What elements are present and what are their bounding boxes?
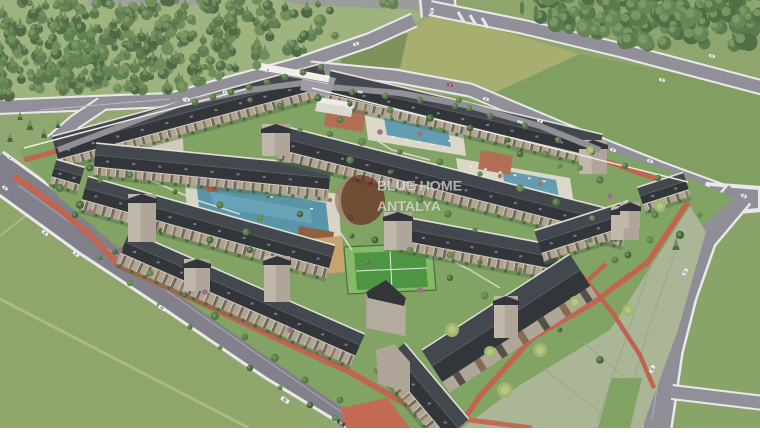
svg-text:BLUE HOME: BLUE HOME [377,179,462,195]
svg-text:ANTALYA: ANTALYA [377,199,441,215]
